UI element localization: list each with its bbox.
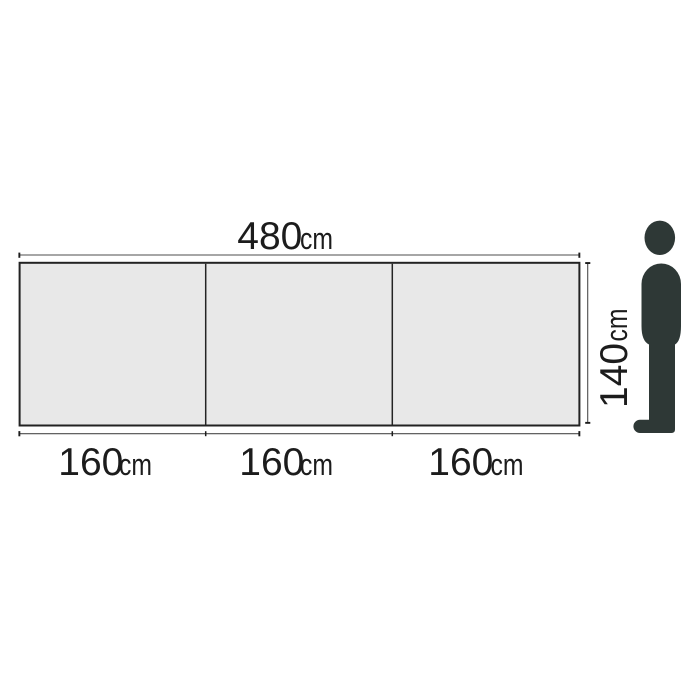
svg-text:cm: cm — [300, 448, 333, 482]
svg-text:480: 480 — [237, 215, 302, 258]
svg-text:140: 140 — [593, 343, 636, 408]
svg-text:160: 160 — [428, 441, 493, 484]
svg-text:cm: cm — [300, 222, 333, 256]
svg-text:cm: cm — [119, 448, 152, 482]
svg-text:cm: cm — [491, 448, 524, 482]
svg-text:160: 160 — [239, 441, 304, 484]
svg-text:cm: cm — [600, 309, 634, 342]
svg-text:160: 160 — [58, 441, 123, 484]
